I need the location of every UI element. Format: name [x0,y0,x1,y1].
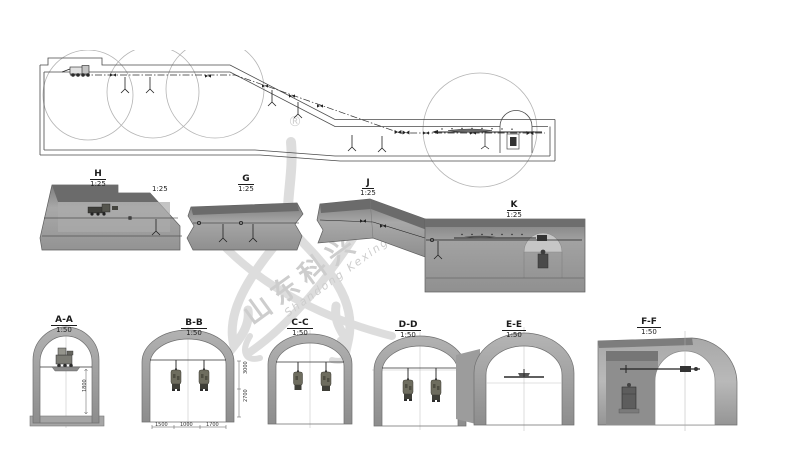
cross-label-bb: B-B 1:50 [175,312,213,338]
section-h-scale: 1:25 [80,181,116,188]
dim-b-horizontal-3: 1700 [206,422,219,428]
cross-bb-scale: 1:50 [175,330,213,337]
cross-ff-scale: 1:50 [630,329,668,336]
cross-label-cc: C-C 1:50 [281,312,319,338]
cross-section-f-view [592,325,752,437]
dim-b-vertical-1: 3000 [243,361,249,374]
section-g-scale: 1:25 [228,186,264,193]
section-j-scale: 1:25 [350,190,386,197]
cross-label-ff: F-F 1:50 [630,311,668,337]
drawing-canvas: ® 山东科兴 Shandong Kexing [0,0,800,450]
section-label-h2-scale: 1:25 [152,185,168,193]
section-k-scale: 1:25 [496,212,532,219]
section-label-g: G 1:25 [228,168,264,194]
cross-dd-scale: 1:50 [389,332,427,339]
chamber-cabinet-icon [619,383,639,413]
anchor-symbol-icons [110,73,533,135]
cross-aa-name: A-A [51,316,77,326]
cross-label-aa: A-A 1:50 [45,309,83,335]
section-h-name: H [90,170,106,180]
cross-a-machine-icon [52,348,80,371]
dim-b-horizontal-1: 1500 [155,422,168,428]
cross-dd-name: D-D [395,321,422,331]
cross-label-ee: E-E 1:50 [495,314,533,340]
section-k-view [424,216,588,294]
hanging-machine-icon [403,368,413,401]
cross-section-a-view [28,322,106,432]
section-label-j: J 1:25 [350,172,386,198]
dim-b-vertical-2: 2700 [243,389,249,402]
conveyor-icon [432,128,542,149]
cross-aa-scale: 1:50 [45,327,83,334]
detail-callout-circles [43,50,537,187]
hanging-machine-icon [431,368,441,402]
section-g-name: G [238,175,253,185]
hanger-icons [121,77,386,152]
cross-label-dd: D-D 1:50 [389,314,427,340]
hanging-machine-icon [171,360,181,391]
cross-ff-name: F-F [637,318,661,328]
hanging-machine-icon [294,362,303,390]
cross-ee-name: E-E [502,321,526,331]
cross-cc-name: C-C [287,319,312,329]
section-label-h: H 1:25 [80,163,116,189]
cross-section-c-view [262,328,362,433]
section-j-view [315,190,431,266]
section-label-k: K 1:25 [496,194,532,220]
cross-cc-scale: 1:50 [281,330,319,337]
tunnel-plan-outline [40,58,555,161]
alignment-centerline [70,75,545,133]
crown-device-icon [504,369,544,377]
cross-ee-scale: 1:50 [495,332,533,339]
cross-section-b-view [138,325,248,433]
hanging-machine-icon [321,362,331,391]
dim-b-horizontal-2: 1000 [180,422,193,428]
cross-bb-name: B-B [181,319,206,329]
section-g-view [185,192,307,258]
section-j-name: J [362,179,373,189]
hanging-machine-icon [199,360,209,391]
plan-cabinet-icon [510,137,517,146]
dim-a-vertical: 1800 [82,379,88,392]
section-k-name: K [507,201,522,211]
cross-section-e-view [456,325,580,437]
